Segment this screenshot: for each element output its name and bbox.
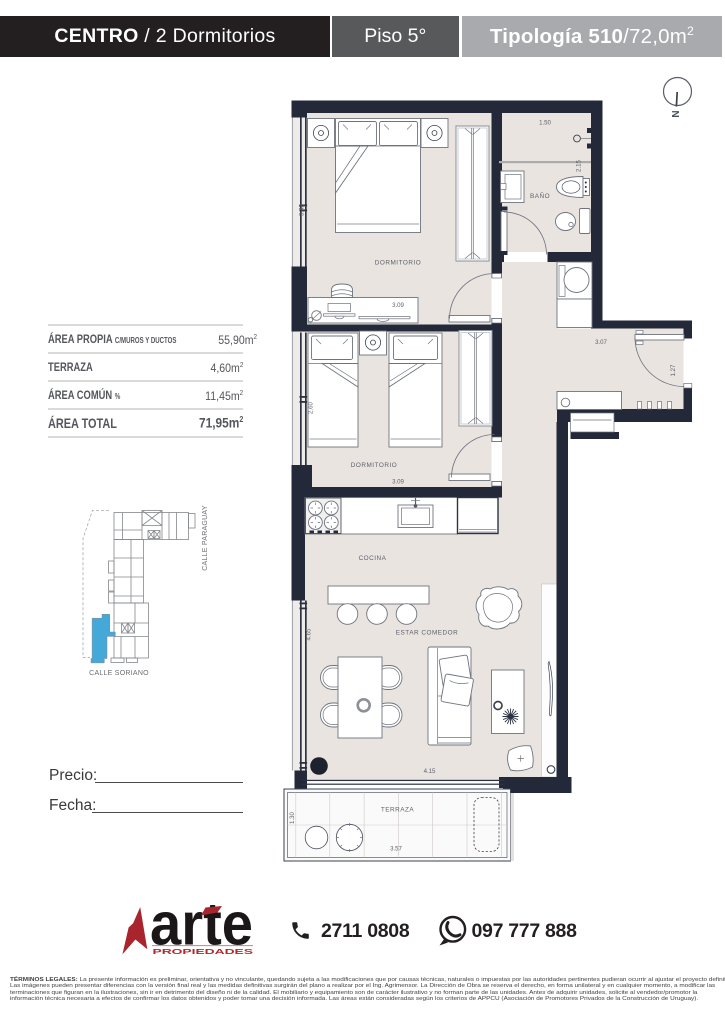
- svg-text:PROPIEDADES: PROPIEDADES: [153, 947, 254, 956]
- svg-text:1.50: 1.50: [539, 120, 551, 127]
- svg-text:097 777 888: 097 777 888: [472, 920, 578, 942]
- svg-text:2.15: 2.15: [576, 159, 583, 171]
- svg-text:4.65: 4.65: [306, 628, 313, 640]
- svg-text:CALLE PARAGUAY: CALLE PARAGUAY: [202, 505, 209, 571]
- svg-text:N: N: [671, 110, 682, 117]
- svg-text:ESTAR COMEDOR: ESTAR COMEDOR: [396, 630, 458, 637]
- svg-text:1.30: 1.30: [289, 811, 296, 823]
- svg-text:DORMITORIO: DORMITORIO: [351, 462, 397, 469]
- svg-text:BAÑO: BAÑO: [530, 191, 550, 200]
- svg-text:3.42: 3.42: [299, 203, 306, 215]
- svg-text:3.57: 3.57: [390, 846, 402, 853]
- svg-text:3.07: 3.07: [595, 339, 607, 346]
- svg-text:3.09: 3.09: [392, 302, 404, 309]
- svg-text:4.15: 4.15: [424, 768, 436, 775]
- svg-text:2711 0808: 2711 0808: [321, 920, 410, 942]
- svg-text:3.09: 3.09: [392, 479, 404, 486]
- svg-text:DORMITORIO: DORMITORIO: [375, 260, 421, 267]
- svg-text:COCINA: COCINA: [359, 555, 387, 562]
- svg-text:TERRAZA: TERRAZA: [381, 807, 415, 814]
- svg-text:1.27: 1.27: [670, 364, 677, 376]
- svg-text:2.60: 2.60: [308, 401, 315, 413]
- svg-text:CALLE SORIANO: CALLE SORIANO: [89, 670, 149, 677]
